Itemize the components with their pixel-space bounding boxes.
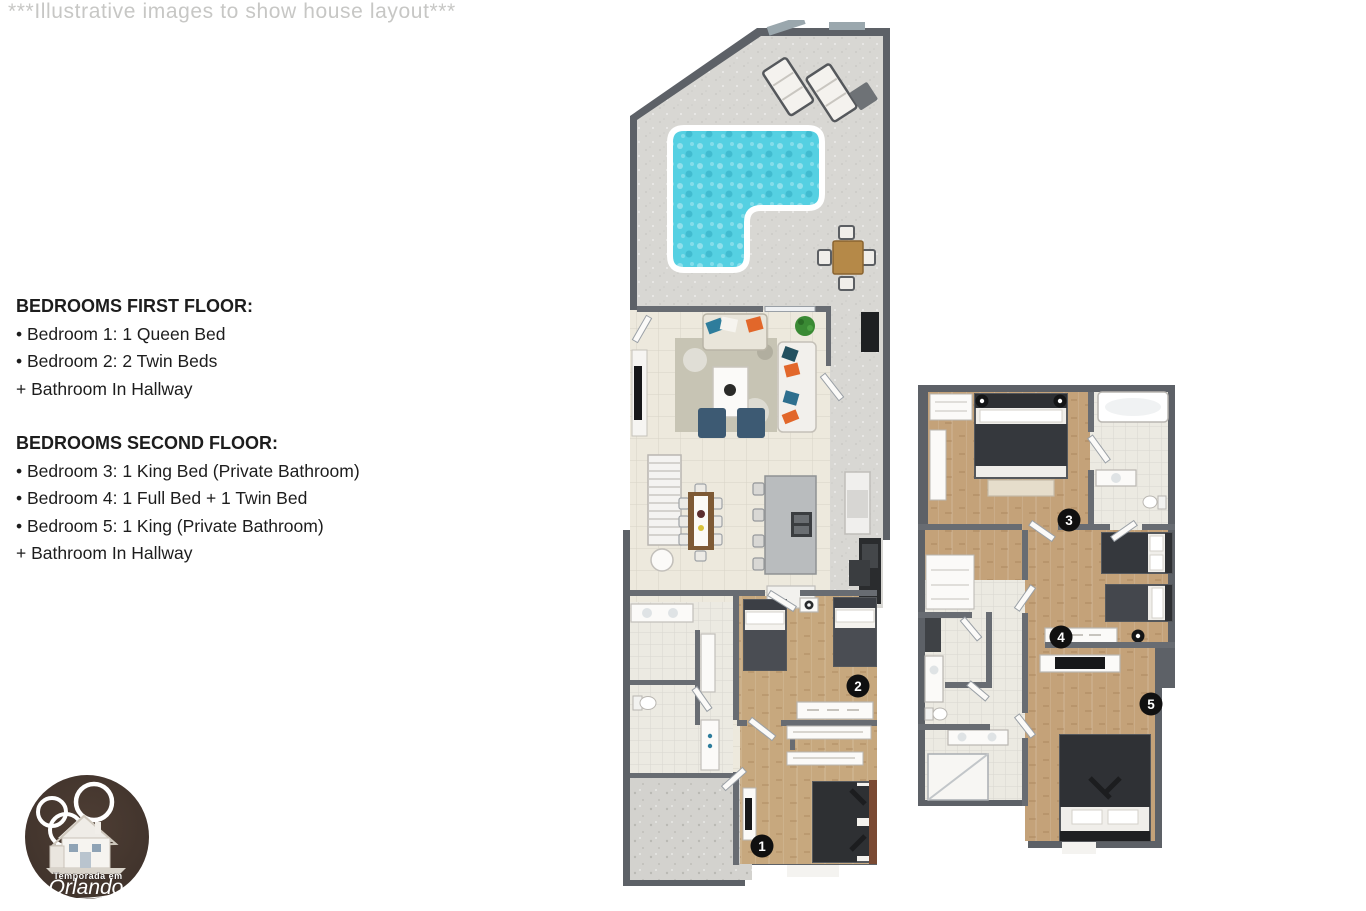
legend-item: • Bedroom 4: 1 Full Bed + 1 Twin Bed [16,485,360,513]
door-mat [1062,842,1096,854]
legend-item: • Bedroom 2: 2 Twin Beds [16,348,360,376]
side-table [651,549,673,571]
watermark-text: ***Illustrative images to show house lay… [8,0,456,24]
laundry-counter [701,720,719,770]
door-mat [787,865,839,877]
logo-line2: Orlando [49,876,124,899]
legend-item: • Bedroom 1: 1 Queen Bed [16,321,360,349]
sliding-door [765,307,815,312]
twin-bed [834,598,876,666]
shower [925,618,941,652]
room-badge-5: 5 [1140,693,1163,716]
king-bed [975,394,1067,478]
nightstand [800,598,818,612]
toilet [633,696,656,710]
bar-stool [753,509,764,521]
shower-stall [928,754,988,800]
bed-bench [988,480,1054,496]
badge-number: 2 [854,679,862,694]
room-badge-4: 4 [1050,626,1073,649]
brand-logo: Temporada em Orlando [22,772,152,902]
vanity [631,604,693,622]
legend-item: • Bedroom 3: 1 King Bed (Private Bathroo… [16,458,360,486]
sofa [703,314,767,350]
twin-bed [744,600,786,670]
ottoman [698,408,726,438]
page: ***Illustrative images to show house lay… [0,0,1366,911]
badge-number: 3 [1065,513,1073,528]
double-vanity [948,730,1008,745]
toilet [1143,496,1166,509]
bar-stool [753,535,764,547]
legend-first-floor-title: BEDROOMS FIRST FLOOR: [16,293,360,321]
dresser [797,702,873,719]
bar-stool [753,483,764,495]
tv-dresser [743,788,756,840]
room-badge-2: 2 [847,675,870,698]
legend-item: + Bathroom In Hallway [16,540,360,568]
outdoor-tv [861,312,879,352]
twin-bed [1106,585,1172,621]
bedroom-legend: BEDROOMS FIRST FLOOR: • Bedroom 1: 1 Que… [16,293,360,568]
legend-item: • Bedroom 5: 1 King (Private Bathroom) [16,513,360,541]
refrigerator [849,560,870,586]
legend-item: + Bathroom In Hallway [16,376,360,404]
ottoman [737,408,765,438]
badge-number: 4 [1057,630,1065,645]
window-seat [930,430,946,500]
badge-number: 1 [758,839,766,854]
room-badge-3: 3 [1058,509,1081,532]
second-floor-plan: 3 4 5 [910,378,1185,858]
badge-number: 5 [1147,697,1155,712]
sectional-sofa [778,342,816,432]
shower [701,634,715,692]
bar-stool [753,558,764,570]
closet-shelves [926,555,974,609]
room-badge-1: 1 [751,835,774,858]
legend-first-floor: BEDROOMS FIRST FLOOR: • Bedroom 1: 1 Que… [16,293,360,403]
queen-bed [813,780,877,864]
tv-dresser [1040,655,1120,672]
king-bed [1060,735,1150,841]
vanity [925,656,943,702]
legend-second-floor: BEDROOMS SECOND FLOOR: • Bedroom 3: 1 Ki… [16,430,360,568]
toilet [925,708,947,720]
legend-second-floor-title: BEDROOMS SECOND FLOOR: [16,430,360,458]
tv-console [632,350,647,436]
first-floor-plan: 1 2 [615,20,900,890]
